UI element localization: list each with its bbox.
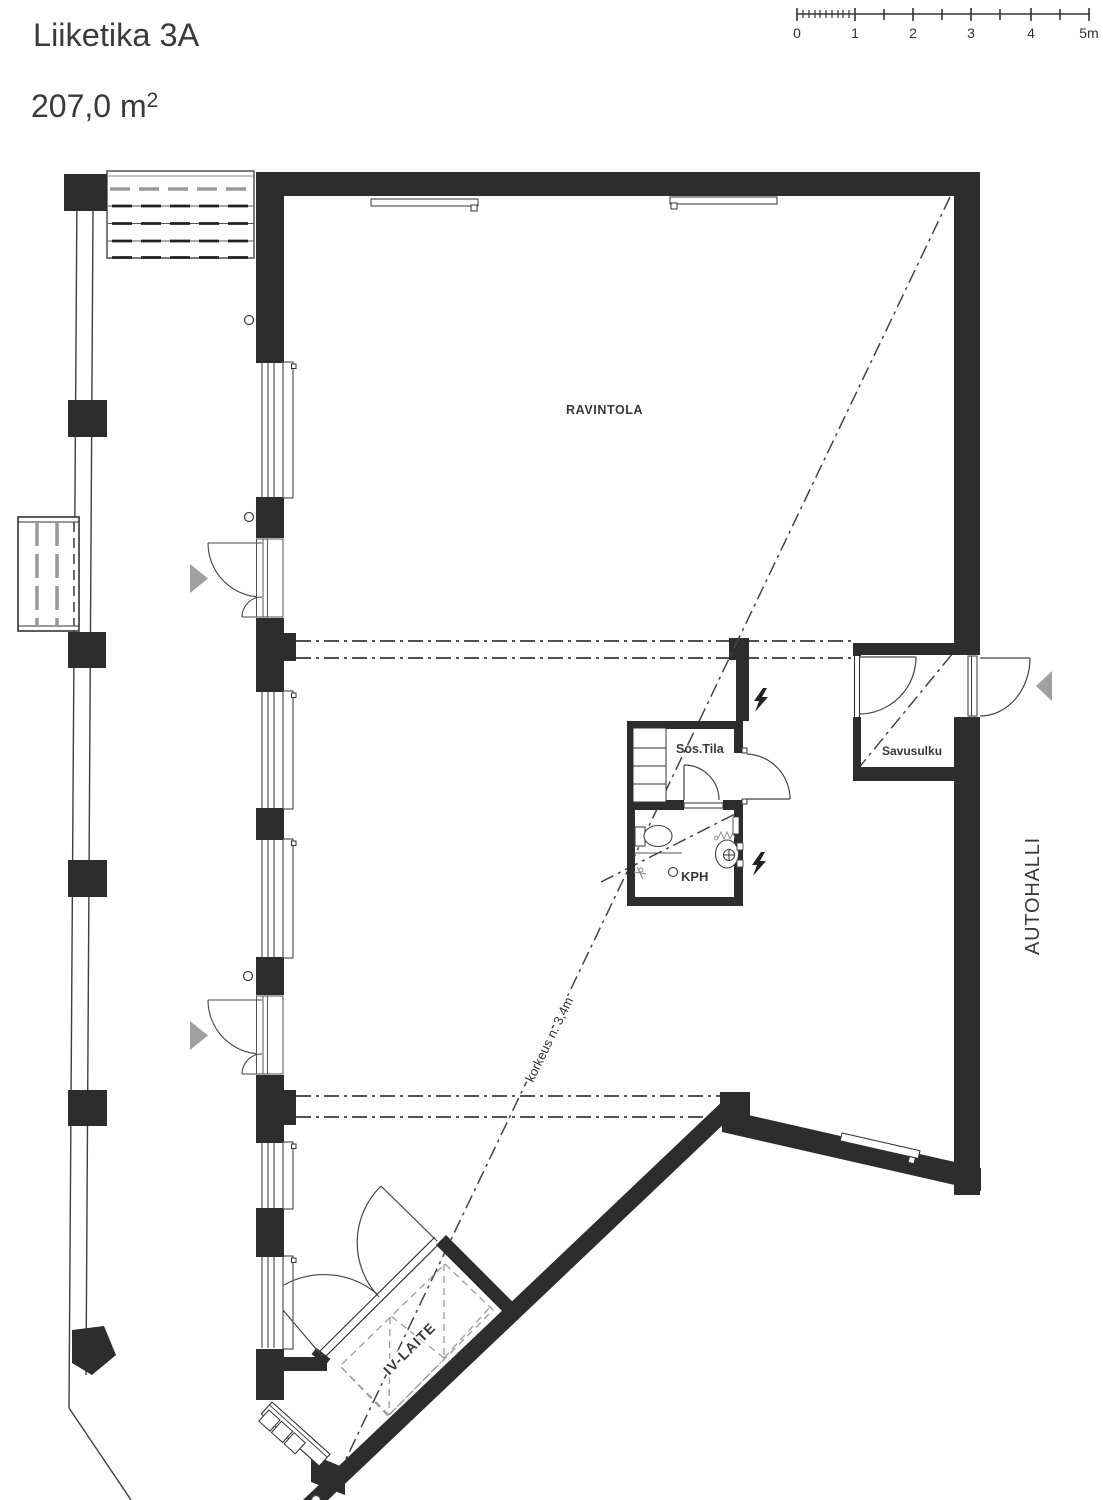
svg-text:Liiketika 3A: Liiketika 3A	[33, 17, 200, 53]
svg-text:Savusulku: Savusulku	[882, 744, 942, 758]
svg-text:2: 2	[909, 25, 917, 41]
svg-text:Sos.Tila: Sos.Tila	[676, 742, 725, 756]
svg-text:KPH: KPH	[681, 869, 708, 884]
svg-text:1: 1	[851, 25, 859, 41]
svg-text:5m: 5m	[1079, 25, 1098, 41]
svg-text:207,0 m2: 207,0 m2	[31, 88, 158, 124]
svg-text:3: 3	[967, 25, 975, 41]
svg-text:AUTOHALLI: AUTOHALLI	[1022, 837, 1044, 955]
svg-text:RAVINTOLA: RAVINTOLA	[566, 403, 643, 417]
svg-text:4: 4	[1027, 25, 1035, 41]
svg-text:0: 0	[793, 25, 801, 41]
